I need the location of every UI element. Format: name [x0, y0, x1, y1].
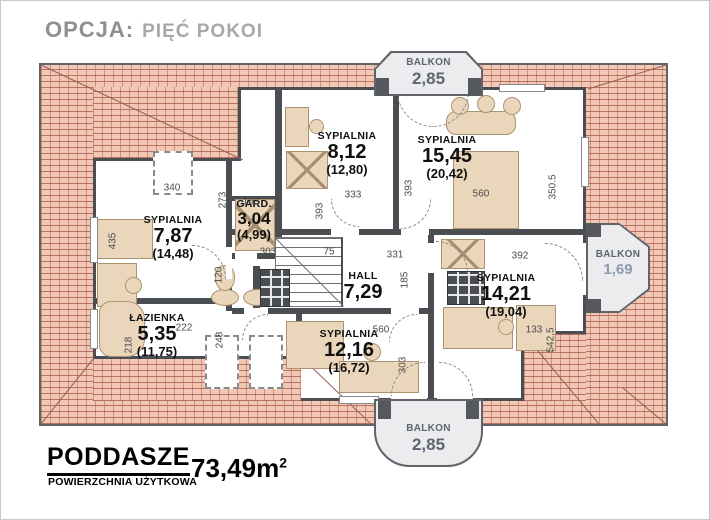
door-opening	[235, 253, 257, 259]
balcony-pier	[586, 299, 601, 313]
dimension-label: 133	[526, 325, 543, 336]
balcony-label: BALKON 2,85	[374, 57, 483, 88]
room-label-sypialnia-1421: SYPIALNIA 14,21 (19,04)	[446, 273, 566, 319]
room-floor-area: (16,72)	[289, 361, 409, 375]
room-label-sypialnia-1216: SYPIALNIA 12,16 (16,72)	[289, 329, 409, 375]
door-opening	[331, 229, 359, 235]
room-label-sypialnia-787: SYPIALNIA 7,87 (14,48)	[113, 215, 233, 261]
chair	[477, 95, 495, 113]
dimension-label: 340	[164, 183, 181, 194]
door-opening	[244, 308, 268, 314]
sink	[211, 289, 239, 306]
room-floor-area: (11,75)	[97, 345, 217, 359]
room-area: 12,16	[289, 340, 409, 361]
room-floor-area: (14,48)	[113, 247, 233, 261]
dimension-label: 273	[218, 192, 229, 209]
page-title: OPCJA:PIĘĆ POKOI	[45, 17, 263, 43]
dimension-label: 120	[214, 267, 225, 284]
room-area: 15,45	[387, 146, 507, 167]
chair	[125, 277, 142, 294]
skylight-window	[249, 335, 283, 389]
dimension-label: 542,5	[546, 327, 557, 352]
dimension-label: 350.5	[548, 174, 559, 199]
room-floor-area: (4,99)	[219, 228, 289, 242]
balcony-name: BALKON	[406, 423, 451, 434]
dimension-label: 303	[260, 247, 277, 258]
balcony-name: BALKON	[406, 57, 451, 68]
dimension-label: 560	[373, 325, 390, 336]
dimension-label: 393	[315, 203, 326, 220]
dimension-label: 303	[398, 357, 409, 374]
dimension-label: 218	[124, 337, 135, 354]
room-area: 3,04	[219, 210, 289, 228]
dimension-label: 560	[473, 189, 490, 200]
balcony-pier	[586, 223, 601, 237]
room-label-lazienka: ŁAZIENKA 5,35 (11,75)	[97, 313, 217, 359]
balcony-top: BALKON 2,85	[374, 51, 483, 96]
area-unit: m	[256, 453, 279, 483]
dimension-label: 185	[400, 272, 411, 289]
chair	[503, 97, 521, 115]
room-area: 7,87	[113, 226, 233, 247]
chair	[498, 319, 514, 335]
floor-level-title: PODDASZE	[47, 443, 190, 476]
total-area-value: 73,49m2	[191, 453, 287, 484]
floor-plan-sheet: OPCJA:PIĘĆ POKOI	[0, 0, 710, 520]
area-unit-exponent: 2	[279, 454, 287, 470]
window	[339, 396, 379, 404]
door-opening	[428, 243, 434, 273]
dimension-label: 248	[215, 332, 226, 349]
dimension-label: 435	[108, 233, 119, 250]
dimension-label: 392	[512, 251, 529, 262]
balcony-door-opening	[583, 243, 586, 295]
window	[581, 137, 589, 187]
room-floor-area: (19,04)	[446, 305, 566, 319]
bathroom-cabinet	[260, 269, 290, 307]
balcony-area: 2,85	[376, 435, 481, 455]
dimension-label: 183	[243, 197, 260, 208]
balcony-pier	[378, 401, 391, 419]
title-prefix: OPCJA:	[45, 17, 134, 42]
room-area: 14,21	[446, 284, 566, 305]
dimension-label: 75	[323, 247, 334, 258]
floor-plan: BALKON 2,85 BALKON 1,69 BALKON 2,85 SYPI…	[39, 47, 671, 475]
balcony-label: BALKON 2,85	[376, 423, 481, 454]
balcony-bottom: BALKON 2,85	[374, 399, 483, 467]
title-option-name: PIĘĆ POKOI	[142, 21, 263, 42]
balcony-area: 2,85	[374, 69, 483, 89]
window	[499, 84, 545, 92]
dimension-label: 222	[176, 323, 193, 334]
balcony-name: BALKON	[596, 249, 641, 260]
door-opening	[401, 229, 429, 235]
room-label-sypialnia-1545: SYPIALNIA 15,45 (20,42)	[387, 135, 507, 181]
balcony-label: BALKON 1,69	[586, 249, 650, 278]
dimension-label: 393	[404, 180, 415, 197]
usable-area-label: POWIERZCHNIA UŻYTKOWA	[48, 476, 197, 488]
dimension-label: 333	[345, 190, 362, 201]
room-area: 5,35	[97, 324, 217, 345]
area-number: 73,49	[191, 453, 256, 483]
window	[90, 217, 98, 263]
dimension-label: 331	[387, 250, 404, 261]
balcony-pier	[466, 401, 479, 419]
balcony-area: 1,69	[586, 261, 650, 278]
